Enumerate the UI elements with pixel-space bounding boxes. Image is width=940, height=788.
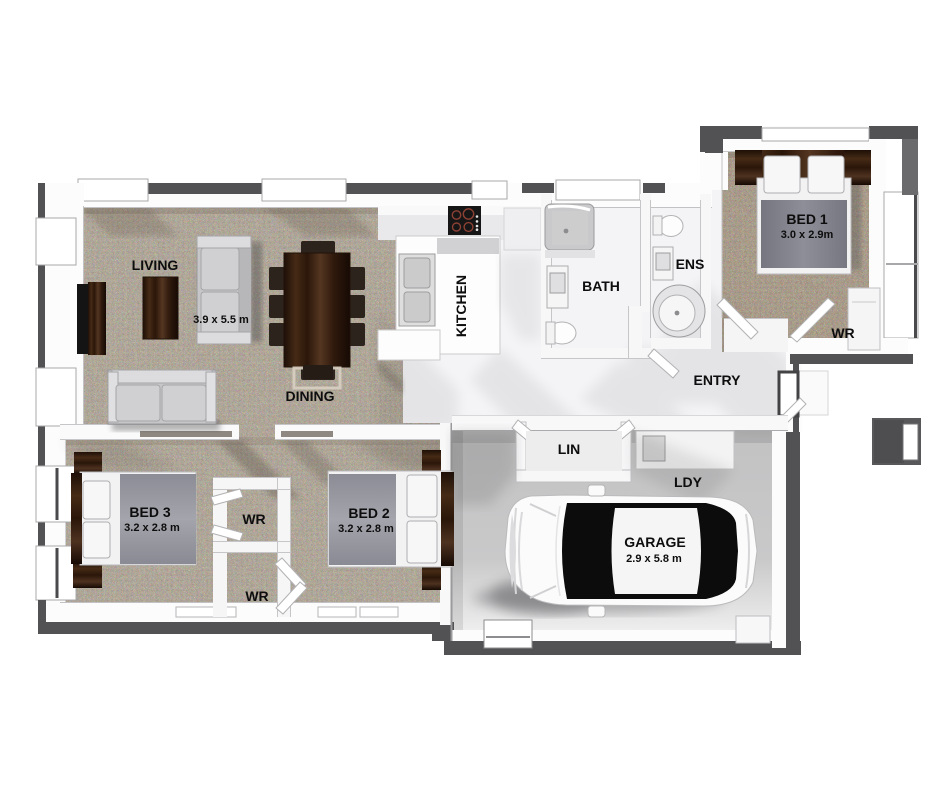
- svg-text:ENS: ENS: [676, 256, 705, 272]
- svg-text:GARAGE: GARAGE: [624, 534, 685, 550]
- svg-text:DINING: DINING: [286, 388, 335, 404]
- svg-text:LDY: LDY: [674, 474, 703, 490]
- svg-text:3.0 x 2.9m: 3.0 x 2.9m: [781, 229, 834, 241]
- svg-text:ENTRY: ENTRY: [694, 372, 742, 388]
- svg-text:KITCHEN: KITCHEN: [453, 275, 469, 337]
- svg-text:BATH: BATH: [582, 278, 620, 294]
- svg-text:WR: WR: [245, 588, 268, 604]
- svg-text:LIVING: LIVING: [132, 257, 179, 273]
- svg-text:BED 1: BED 1: [786, 211, 827, 227]
- svg-text:WR: WR: [831, 325, 854, 341]
- svg-text:WR: WR: [242, 511, 265, 527]
- svg-text:LIN: LIN: [558, 441, 581, 457]
- svg-text:BED 2: BED 2: [348, 505, 389, 521]
- svg-text:3.2 x 2.8 m: 3.2 x 2.8 m: [124, 522, 180, 534]
- svg-text:2.9 x 5.8 m: 2.9 x 5.8 m: [626, 553, 682, 565]
- svg-text:BED 3: BED 3: [129, 504, 170, 520]
- svg-text:3.2 x 2.8 m: 3.2 x 2.8 m: [338, 523, 394, 535]
- svg-text:3.9 x 5.5 m: 3.9 x 5.5 m: [193, 314, 249, 326]
